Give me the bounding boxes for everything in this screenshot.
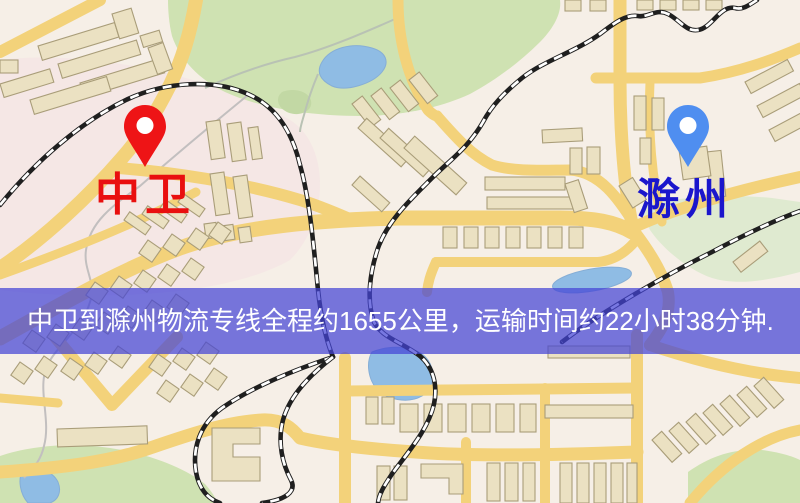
map-canvas: 中卫 滁州 中卫到滁州物流专线全程约1655公里，运输时间约22小时38分钟.	[0, 0, 800, 503]
route-info-banner: 中卫到滁州物流专线全程约1655公里，运输时间约22小时38分钟.	[0, 288, 800, 354]
destination-city-label: 滁州	[637, 179, 733, 222]
map-graphic	[0, 0, 800, 503]
origin-city-label: 中卫	[95, 172, 195, 217]
route-info-text: 中卫到滁州物流专线全程约1655公里，运输时间约22小时38分钟.	[27, 306, 774, 336]
